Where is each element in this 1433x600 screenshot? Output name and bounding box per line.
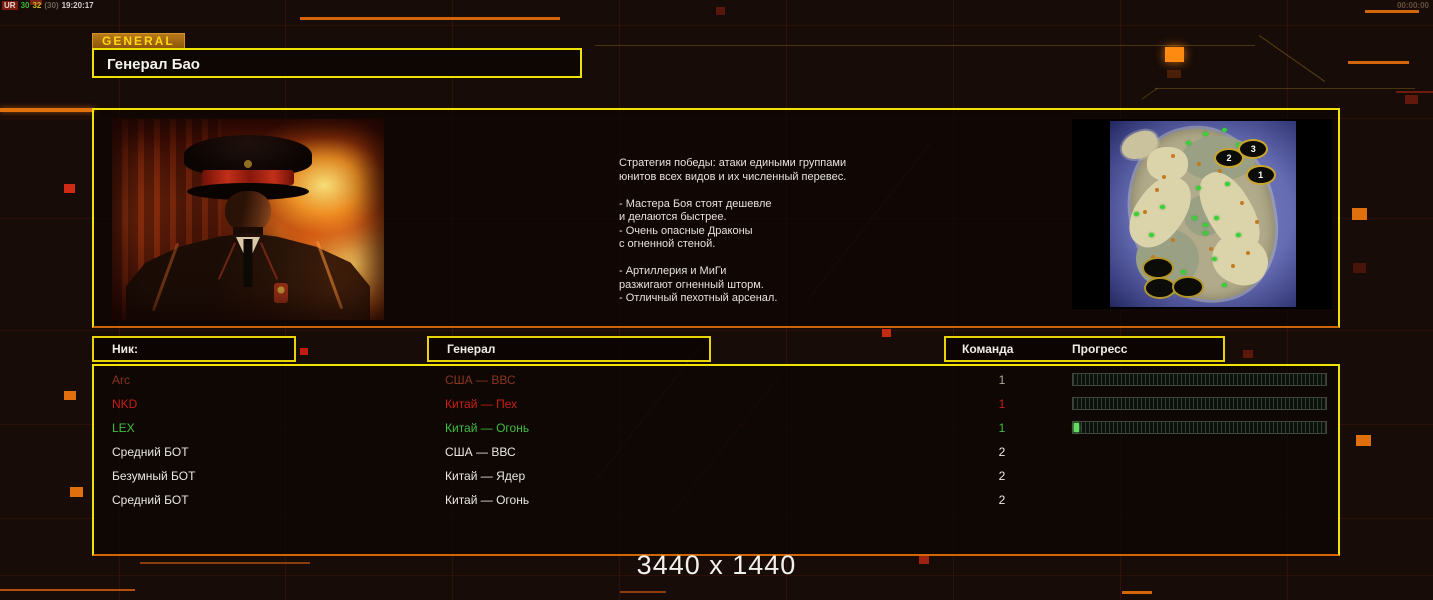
trace-line	[1122, 591, 1152, 594]
map-preview: 2 3 1	[1110, 121, 1296, 307]
map-sand	[1147, 147, 1188, 180]
trace-line	[0, 108, 95, 112]
player-row: Средний БОТ США — ВВС 2	[94, 441, 1338, 465]
map-tree	[1196, 186, 1201, 190]
player-nick: Arc	[112, 373, 130, 387]
debug-readout: UR3032(30)19:20:17	[2, 1, 97, 10]
map-tree	[1149, 233, 1154, 237]
player-team: 1	[992, 397, 1012, 411]
player-general: Китай — Огонь	[445, 421, 529, 435]
player-list-panel: Arc США — ВВС 1 NKD Китай — Пех 1 LEX Ки…	[92, 364, 1340, 556]
decor-square	[70, 487, 83, 497]
map-tree	[1203, 231, 1208, 235]
player-nick: LEX	[112, 421, 135, 435]
trace-line	[1142, 87, 1159, 99]
player-team: 1	[992, 373, 1012, 387]
map-tree	[1222, 128, 1227, 132]
map-tree	[1160, 205, 1165, 209]
player-team: 2	[992, 445, 1012, 459]
loading-screen: UR3032(30)19:20:17 00:00:00 GENERAL Гене…	[0, 0, 1433, 600]
map-supply	[1162, 175, 1166, 179]
decor-square	[1165, 47, 1184, 62]
map-oil-derrick	[1142, 257, 1174, 279]
map-supply	[1246, 251, 1250, 255]
map-supply	[1255, 220, 1259, 224]
portrait-vignette	[112, 119, 384, 320]
player-row: Средний БОТ Китай — Огонь 2	[94, 489, 1338, 513]
player-general: США — ВВС	[445, 373, 516, 387]
debug-value-c: (30)	[44, 1, 58, 10]
progress-bar	[1072, 421, 1327, 434]
player-team: 1	[992, 421, 1012, 435]
decor-square	[1167, 70, 1181, 78]
briefing-panel: Стратегия победы: атаки едиными группами…	[92, 108, 1340, 328]
player-row: Безумный БОТ Китай — Ядер 2	[94, 465, 1338, 489]
decor-square	[1243, 350, 1253, 358]
decor-square	[716, 7, 725, 15]
column-header-team-progress: Команда Прогресс	[944, 336, 1225, 362]
player-general: Китай — Пех	[445, 397, 517, 411]
decor-square	[1353, 263, 1366, 273]
decor-square	[300, 348, 308, 355]
decor-square	[1356, 435, 1371, 446]
debug-label: UR	[2, 1, 18, 10]
debug-time: 19:20:17	[62, 1, 94, 10]
trace-line	[620, 591, 666, 593]
player-nick: Средний БОТ	[112, 493, 189, 507]
trace-line	[0, 589, 135, 591]
minimap: 2 3 1	[1072, 119, 1332, 309]
decor-square	[1405, 95, 1418, 104]
match-clock: 00:00:00	[1397, 1, 1429, 10]
player-row: LEX Китай — Огонь 1	[94, 417, 1338, 441]
progress-bar	[1072, 373, 1327, 386]
decor-square	[64, 184, 75, 193]
trace-line	[1259, 35, 1325, 82]
map-tree	[1192, 216, 1197, 220]
start-position-3: 3	[1238, 139, 1268, 159]
player-general: США — ВВС	[445, 445, 516, 459]
player-team: 2	[992, 493, 1012, 507]
grid-line-h	[0, 330, 1433, 331]
grid-line-h	[0, 25, 1433, 26]
map-oil-derrick	[1172, 276, 1204, 298]
progress-bar-fill	[1074, 423, 1079, 432]
decor-square	[1352, 208, 1367, 220]
trace-line	[1348, 61, 1409, 64]
map-tree	[1214, 216, 1219, 220]
player-nick: NKD	[112, 397, 137, 411]
column-header-general: Генерал	[427, 336, 711, 362]
debug-value-a: 30	[21, 1, 30, 10]
column-header-nick: Ник:	[92, 336, 296, 362]
map-supply	[1155, 188, 1159, 192]
strategy-briefing-text: Стратегия победы: атаки едиными группами…	[619, 157, 879, 306]
player-row: NKD Китай — Пех 1	[94, 393, 1338, 417]
map-tree	[1222, 283, 1227, 287]
player-team: 2	[992, 469, 1012, 483]
decor-square	[882, 329, 891, 337]
player-general: Китай — Ядер	[445, 469, 525, 483]
resolution-label: 3440 x 1440	[0, 550, 1433, 581]
trace-line	[1396, 91, 1433, 93]
debug-value-b: 32	[32, 1, 41, 10]
column-header-team: Команда	[962, 338, 1013, 360]
player-row: Arc США — ВВС 1	[94, 369, 1338, 393]
trace-line	[595, 45, 1255, 46]
start-position-1: 1	[1246, 165, 1276, 185]
player-nick: Безумный БОТ	[112, 469, 195, 483]
general-portrait	[112, 119, 384, 320]
progress-bar	[1072, 397, 1327, 410]
player-general: Китай — Огонь	[445, 493, 529, 507]
column-header-progress: Прогресс	[1072, 338, 1127, 360]
decor-square	[64, 391, 76, 400]
map-tree	[1181, 270, 1186, 274]
player-nick: Средний БОТ	[112, 445, 189, 459]
trace-line	[1365, 10, 1419, 13]
trace-line	[300, 17, 560, 20]
trace-line	[1155, 88, 1415, 89]
page-title: Генерал Бао	[92, 48, 582, 78]
